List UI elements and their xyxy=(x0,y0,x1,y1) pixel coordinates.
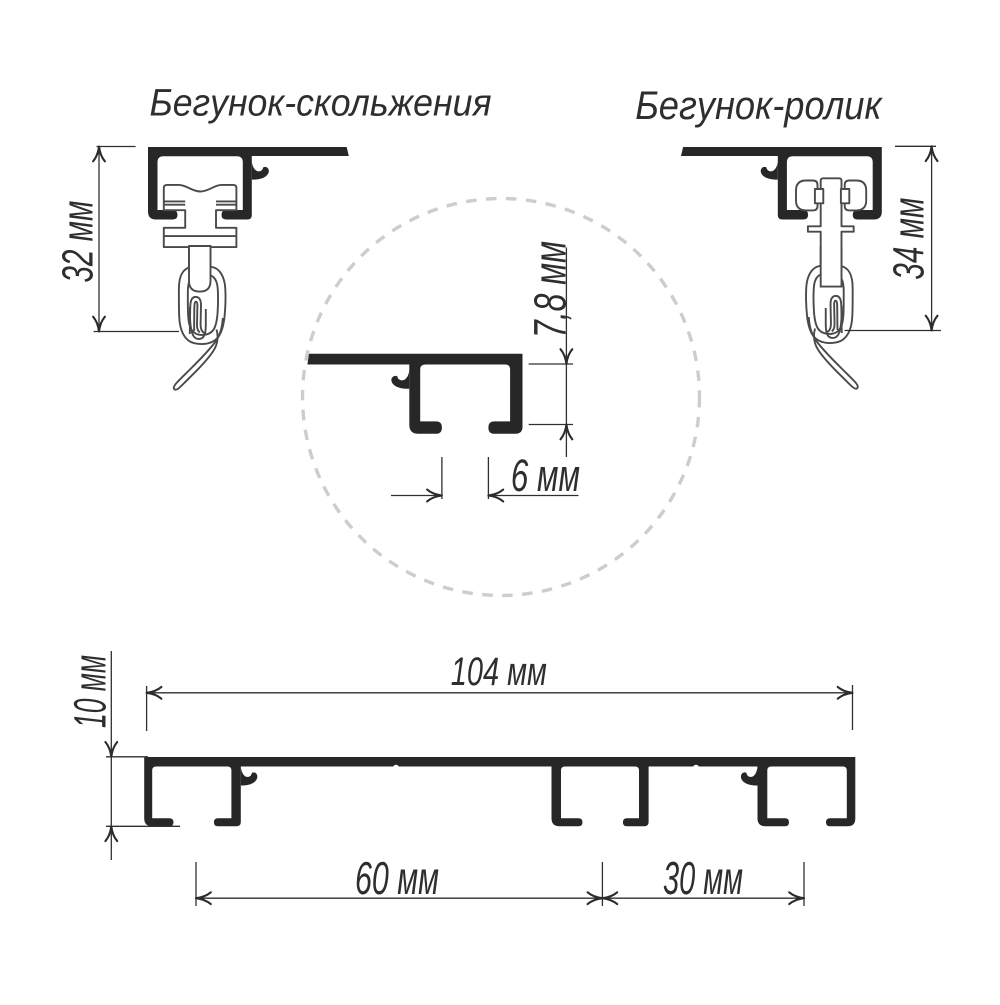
svg-text:104 мм: 104 мм xyxy=(451,650,547,694)
svg-text:32 мм: 32 мм xyxy=(54,201,103,283)
svg-text:60 мм: 60 мм xyxy=(355,852,439,904)
svg-text:30 мм: 30 мм xyxy=(663,852,743,904)
svg-text:10 мм: 10 мм xyxy=(65,655,116,728)
svg-text:7,8 мм: 7,8 мм xyxy=(525,241,576,338)
svg-text:Бегунок-ролик: Бегунок-ролик xyxy=(635,84,883,128)
svg-text:34 мм: 34 мм xyxy=(884,198,933,280)
svg-text:6 мм: 6 мм xyxy=(511,450,580,501)
svg-text:Бегунок-скольжения: Бегунок-скольжения xyxy=(150,83,492,125)
